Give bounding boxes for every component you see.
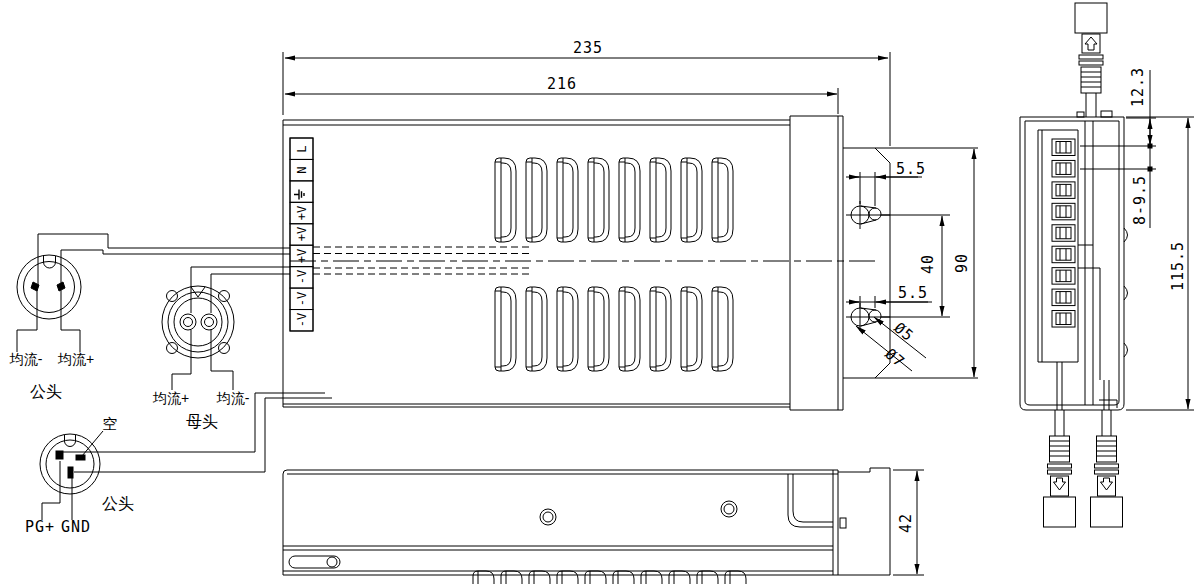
terminal-label: -V bbox=[293, 268, 311, 286]
vent-slot bbox=[473, 571, 494, 584]
vent-slot bbox=[613, 571, 634, 584]
vent-slot bbox=[495, 158, 516, 242]
screw-slot bbox=[1060, 184, 1066, 196]
strain-relief-ribs bbox=[1050, 441, 1070, 456]
screw-terminal-inner bbox=[1056, 270, 1071, 282]
dim-terminal-pitch: 8-9.5 bbox=[1132, 172, 1148, 228]
screw-slot bbox=[1060, 292, 1066, 304]
end-cap bbox=[790, 116, 843, 410]
screw-slot bbox=[1060, 142, 1066, 154]
screw-slot bbox=[1060, 249, 1066, 261]
screw-slot bbox=[1060, 206, 1066, 218]
terminal-label: L bbox=[293, 140, 311, 158]
screw-slot bbox=[1060, 163, 1066, 175]
connector-c-type-label: 公头 bbox=[88, 496, 148, 512]
connector-b-female bbox=[162, 286, 234, 358]
dim-slot-offset-top: 5.5 bbox=[891, 161, 931, 177]
vent-slot bbox=[712, 287, 733, 371]
vent-slot bbox=[681, 158, 702, 242]
vent-slot bbox=[495, 287, 516, 371]
vent-slot bbox=[681, 287, 702, 371]
connector-a-male bbox=[17, 255, 81, 319]
vent-slot bbox=[526, 158, 547, 242]
dim-top-offset: 12.3 bbox=[1130, 65, 1146, 109]
strain-relief bbox=[1097, 436, 1117, 462]
terminal-label: +V bbox=[293, 247, 311, 265]
vent-slot bbox=[712, 158, 733, 242]
connector-body bbox=[1051, 476, 1069, 496]
center-lines bbox=[290, 247, 880, 274]
screw-terminal-inner bbox=[1056, 206, 1071, 218]
terminal-label: N bbox=[293, 161, 311, 179]
top-cable-plug bbox=[1075, 3, 1107, 117]
connector-c-empty-pin-label: 空 bbox=[95, 416, 125, 432]
terminal-label: +V bbox=[293, 225, 311, 243]
screw-terminal-inner bbox=[1056, 292, 1071, 304]
strain-relief-ribs bbox=[1097, 441, 1117, 456]
vent-slot bbox=[529, 571, 550, 584]
screw-terminal-inner bbox=[1056, 184, 1071, 196]
ground-icon bbox=[293, 183, 311, 201]
down-arrow-icon bbox=[1054, 478, 1066, 490]
terminal-label: -V bbox=[293, 311, 311, 329]
vent-slot bbox=[588, 158, 609, 242]
dim-slot-spacing: 40 bbox=[920, 242, 936, 286]
up-arrow-icon bbox=[1085, 37, 1097, 50]
bottom-cable-plugs bbox=[1044, 410, 1123, 527]
dim-base-height: 42 bbox=[898, 501, 914, 545]
dim-width-total: 235 bbox=[568, 40, 608, 56]
collar-ring bbox=[1095, 464, 1119, 468]
connector-wires bbox=[17, 234, 332, 520]
vent-slot bbox=[669, 571, 690, 584]
vent-slot bbox=[697, 571, 718, 584]
vent-slot bbox=[588, 287, 609, 371]
drawing-canvas bbox=[0, 0, 1196, 584]
dim-bracket-height: 90 bbox=[954, 241, 970, 285]
connector-b-type-label: 母头 bbox=[172, 414, 232, 430]
terminal-label: -V bbox=[293, 290, 311, 308]
strain-relief bbox=[1050, 436, 1070, 462]
connector-a-type-label: 公头 bbox=[16, 384, 76, 400]
screw-slot bbox=[1060, 227, 1066, 239]
cable bbox=[1055, 410, 1064, 436]
vent-slot bbox=[641, 571, 662, 584]
vent-slots-top bbox=[495, 158, 733, 371]
screw-slot bbox=[1060, 270, 1066, 282]
vent-slot bbox=[619, 158, 640, 242]
terminal-block-side bbox=[1052, 139, 1075, 327]
connector-b-wire-left-label: 均流+ bbox=[145, 390, 197, 406]
screw-slot bbox=[1060, 313, 1066, 325]
vent-slot bbox=[725, 571, 746, 584]
screw-terminal-inner bbox=[1056, 249, 1071, 261]
dim-width-body: 216 bbox=[542, 76, 582, 92]
vent-slot bbox=[501, 571, 522, 584]
collar-ring bbox=[1048, 464, 1072, 468]
screw-terminal-inner bbox=[1056, 313, 1071, 325]
collar-ring bbox=[1048, 470, 1072, 474]
down-arrow-icon bbox=[1101, 478, 1113, 490]
dim-slot-offset-bottom: 5.5 bbox=[893, 285, 933, 301]
screw-terminal-inner bbox=[1056, 163, 1071, 175]
connector-a-wire-left-label: 均流- bbox=[0, 351, 52, 367]
vent-slot bbox=[650, 158, 671, 242]
keyhole-slots bbox=[846, 201, 890, 331]
vent-slot bbox=[619, 287, 640, 371]
connector-c-gnd-label: GND bbox=[56, 519, 96, 535]
collar-ring bbox=[1095, 470, 1119, 474]
vent-slot bbox=[526, 287, 547, 371]
vent-slot bbox=[557, 287, 578, 371]
vent-slot bbox=[557, 571, 578, 584]
vent-slots-front bbox=[473, 571, 746, 584]
connector-c-pg-label: PG+ bbox=[20, 519, 60, 535]
plug-housing bbox=[1091, 497, 1123, 527]
front-view-outline bbox=[283, 468, 924, 575]
dim-side-height: 115.5 bbox=[1170, 238, 1186, 294]
connector-body bbox=[1098, 476, 1116, 496]
vent-slot bbox=[650, 287, 671, 371]
connector-a-wire-right-label: 均流+ bbox=[50, 351, 102, 367]
technical-drawing-page: 235 216 5.5 5.5 40 90 Ø5 Ø7 12.3 8-9.5 1… bbox=[0, 0, 1196, 584]
cable bbox=[1102, 410, 1111, 436]
plug-housing bbox=[1044, 497, 1076, 527]
connector-c-male bbox=[40, 434, 100, 494]
vent-slot bbox=[557, 158, 578, 242]
vent-slot bbox=[585, 571, 606, 584]
screw-terminal-inner bbox=[1056, 142, 1071, 154]
connector-b-wire-right-label: 均流- bbox=[207, 390, 259, 406]
screw-terminal-inner bbox=[1056, 227, 1071, 239]
terminal-label: +V bbox=[293, 204, 311, 222]
